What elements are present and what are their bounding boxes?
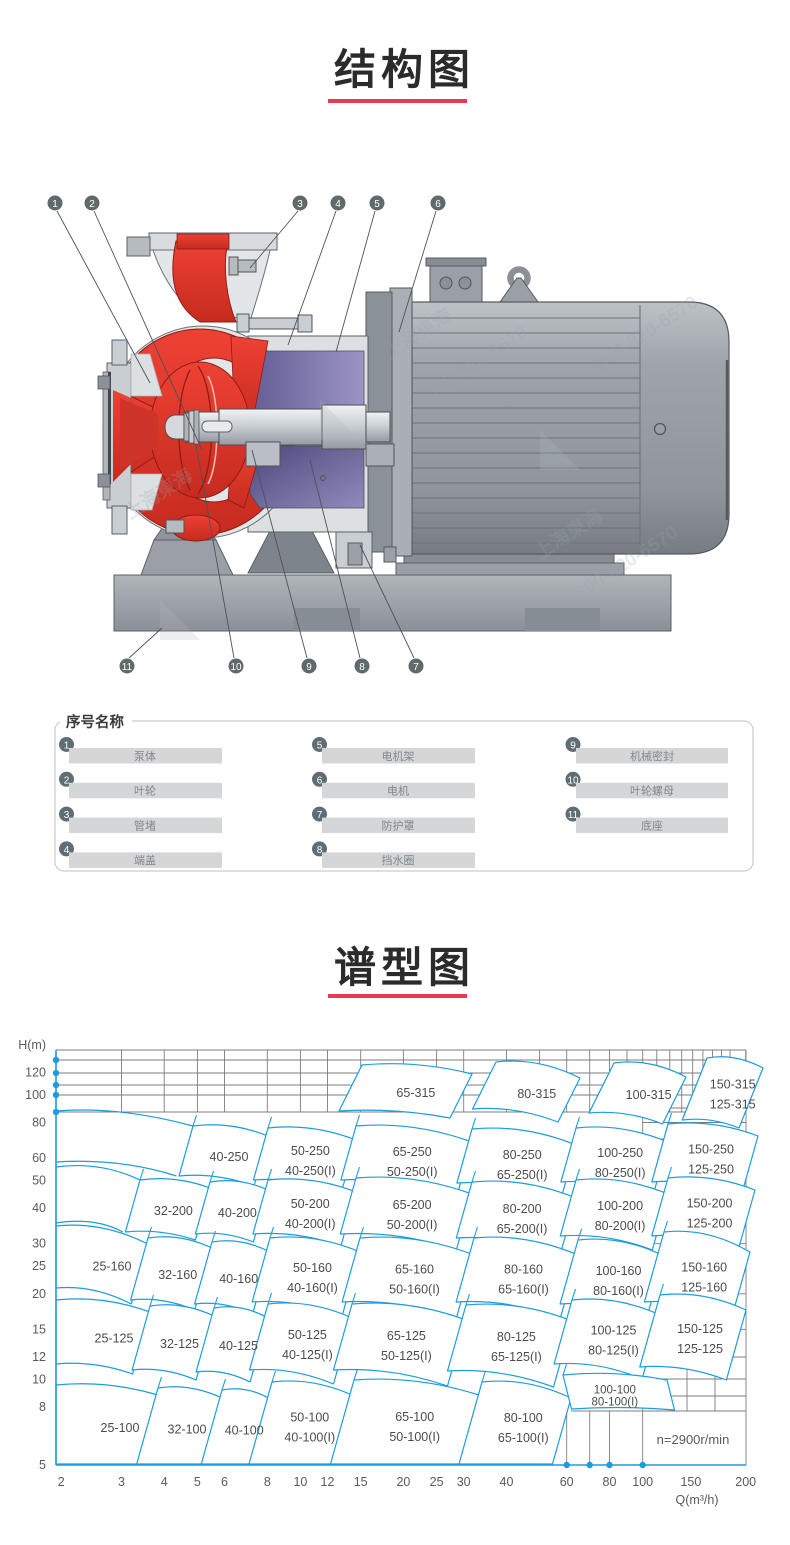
- svg-text:50-200: 50-200: [291, 1197, 330, 1211]
- svg-text:125-160: 125-160: [681, 1281, 727, 1295]
- svg-text:30: 30: [457, 1475, 471, 1489]
- svg-text:管堵: 管堵: [134, 818, 156, 832]
- svg-text:80: 80: [32, 1116, 46, 1130]
- svg-text:100: 100: [632, 1475, 653, 1489]
- svg-text:端盖: 端盖: [134, 853, 156, 867]
- svg-text:40-250(I): 40-250(I): [285, 1164, 336, 1178]
- svg-text:125-250: 125-250: [688, 1163, 734, 1177]
- svg-text:32-125: 32-125: [160, 1337, 199, 1351]
- svg-text:150-200: 150-200: [687, 1197, 733, 1211]
- svg-text:20: 20: [32, 1287, 46, 1301]
- svg-text:7: 7: [317, 810, 323, 821]
- svg-text:50-125: 50-125: [288, 1328, 327, 1342]
- svg-text:125-125: 125-125: [677, 1342, 723, 1356]
- svg-text:40-160: 40-160: [219, 1272, 258, 1286]
- svg-text:80-100: 80-100: [504, 1411, 543, 1425]
- svg-text:80-125: 80-125: [497, 1330, 536, 1344]
- svg-text:60: 60: [32, 1151, 46, 1165]
- svg-text:6: 6: [435, 199, 441, 210]
- svg-text:10: 10: [230, 662, 242, 673]
- svg-text:80-200(I): 80-200(I): [595, 1219, 646, 1233]
- svg-text:50-125(I): 50-125(I): [381, 1349, 432, 1363]
- svg-text:100: 100: [25, 1088, 46, 1102]
- svg-text:15: 15: [32, 1322, 46, 1336]
- svg-text:泵体: 泵体: [134, 749, 156, 763]
- svg-text:5: 5: [317, 741, 323, 752]
- svg-text:挡水圈: 挡水圈: [382, 853, 415, 867]
- svg-text:80-315: 80-315: [517, 1087, 556, 1101]
- svg-text:65-160: 65-160: [395, 1263, 434, 1277]
- svg-text:2: 2: [58, 1475, 65, 1489]
- svg-text:防护罩: 防护罩: [382, 818, 415, 832]
- svg-text:20: 20: [396, 1475, 410, 1489]
- svg-text:3: 3: [64, 810, 70, 821]
- svg-text:8: 8: [317, 845, 323, 856]
- svg-text:50-160(I): 50-160(I): [389, 1283, 440, 1297]
- svg-text:25: 25: [32, 1259, 46, 1273]
- svg-text:H(m): H(m): [18, 1038, 46, 1052]
- svg-text:10: 10: [32, 1372, 46, 1386]
- svg-text:8: 8: [264, 1475, 271, 1489]
- svg-text:60: 60: [560, 1475, 574, 1489]
- svg-text:3: 3: [118, 1475, 125, 1489]
- svg-text:40-160(I): 40-160(I): [287, 1281, 338, 1295]
- svg-text:12: 12: [321, 1475, 335, 1489]
- svg-text:200: 200: [735, 1475, 756, 1489]
- svg-text:40-200(I): 40-200(I): [285, 1217, 336, 1231]
- svg-text:65-125: 65-125: [387, 1329, 426, 1343]
- svg-text:80: 80: [603, 1475, 617, 1489]
- svg-text:150-315: 150-315: [710, 1078, 756, 1092]
- svg-text:50-160: 50-160: [293, 1261, 332, 1275]
- svg-text:80-250(I): 80-250(I): [595, 1166, 646, 1180]
- svg-text:9: 9: [306, 662, 312, 673]
- svg-text:40: 40: [500, 1475, 514, 1489]
- svg-text:80-100(I): 80-100(I): [591, 1397, 638, 1409]
- svg-text:4: 4: [64, 845, 70, 856]
- svg-text:32-160: 32-160: [158, 1268, 197, 1282]
- svg-text:8: 8: [39, 1400, 46, 1414]
- svg-text:120: 120: [25, 1066, 46, 1080]
- svg-text:80-160(I): 80-160(I): [593, 1284, 644, 1298]
- svg-text:40-100: 40-100: [225, 1424, 264, 1438]
- svg-text:65-200: 65-200: [393, 1198, 432, 1212]
- svg-text:4: 4: [161, 1475, 168, 1489]
- svg-text:100-125: 100-125: [591, 1324, 637, 1338]
- svg-text:30: 30: [32, 1237, 46, 1251]
- svg-text:40-200: 40-200: [218, 1206, 257, 1220]
- svg-text:50-250(I): 50-250(I): [387, 1165, 438, 1179]
- svg-text:150-250: 150-250: [688, 1143, 734, 1157]
- svg-text:25: 25: [430, 1475, 444, 1489]
- svg-text:10: 10: [293, 1475, 307, 1489]
- svg-text:65-200(I): 65-200(I): [497, 1222, 548, 1236]
- svg-text:80-250: 80-250: [503, 1148, 542, 1162]
- svg-text:5: 5: [39, 1458, 46, 1472]
- svg-text:电机: 电机: [387, 784, 409, 798]
- svg-text:50-250: 50-250: [291, 1144, 330, 1158]
- svg-text:电机架: 电机架: [382, 749, 415, 763]
- svg-text:Q(m³/h): Q(m³/h): [675, 1493, 718, 1507]
- svg-text:50-100(I): 50-100(I): [389, 1430, 440, 1444]
- svg-text:65-100(I): 65-100(I): [498, 1431, 549, 1445]
- svg-text:5: 5: [194, 1475, 201, 1489]
- svg-text:25-160: 25-160: [93, 1260, 132, 1274]
- svg-text:125-315: 125-315: [710, 1098, 756, 1112]
- svg-text:25-125: 25-125: [95, 1332, 134, 1346]
- svg-text:80-200: 80-200: [503, 1202, 542, 1216]
- svg-text:80-160: 80-160: [504, 1263, 543, 1277]
- svg-text:150-125: 150-125: [677, 1322, 723, 1336]
- svg-text:100-160: 100-160: [596, 1264, 642, 1278]
- svg-text:40-250: 40-250: [210, 1150, 249, 1164]
- svg-text:65-250: 65-250: [393, 1145, 432, 1159]
- svg-text:机械密封: 机械密封: [630, 749, 674, 763]
- svg-text:序号名称: 序号名称: [66, 713, 124, 731]
- svg-text:2: 2: [89, 199, 95, 210]
- svg-text:65-160(I): 65-160(I): [498, 1283, 549, 1297]
- svg-text:7: 7: [413, 662, 419, 673]
- svg-text:150: 150: [680, 1475, 701, 1489]
- svg-text:100-200: 100-200: [597, 1199, 643, 1213]
- svg-text:32-100: 32-100: [168, 1423, 207, 1437]
- svg-text:1: 1: [64, 741, 70, 752]
- svg-text:100-315: 100-315: [626, 1088, 672, 1102]
- svg-text:50-100: 50-100: [290, 1411, 329, 1425]
- svg-text:40: 40: [32, 1201, 46, 1215]
- svg-text:2: 2: [64, 775, 70, 786]
- svg-text:12: 12: [32, 1350, 46, 1364]
- svg-text:100-250: 100-250: [597, 1146, 643, 1160]
- svg-text:8: 8: [359, 662, 365, 673]
- svg-text:40-125(I): 40-125(I): [282, 1348, 333, 1362]
- svg-text:3: 3: [297, 199, 303, 210]
- svg-text:50: 50: [32, 1174, 46, 1188]
- svg-text:65-315: 65-315: [396, 1086, 435, 1100]
- svg-text:50-200(I): 50-200(I): [387, 1218, 438, 1232]
- svg-text:65-250(I): 65-250(I): [497, 1168, 548, 1182]
- svg-text:100-100: 100-100: [594, 1385, 636, 1397]
- svg-text:n=2900r/min: n=2900r/min: [657, 1432, 730, 1447]
- svg-text:叶轮螺母: 叶轮螺母: [630, 784, 674, 798]
- svg-text:150-160: 150-160: [681, 1261, 727, 1275]
- svg-text:125-200: 125-200: [687, 1217, 733, 1231]
- svg-text:5: 5: [374, 199, 380, 210]
- svg-text:11: 11: [122, 662, 133, 673]
- svg-text:32-200: 32-200: [154, 1204, 193, 1218]
- svg-text:1: 1: [52, 199, 58, 210]
- svg-text:4: 4: [335, 199, 341, 210]
- svg-text:叶轮: 叶轮: [134, 784, 156, 798]
- svg-text:65-125(I): 65-125(I): [491, 1350, 542, 1364]
- svg-text:底座: 底座: [641, 818, 663, 832]
- svg-text:65-100: 65-100: [395, 1410, 434, 1424]
- svg-text:9: 9: [570, 741, 576, 752]
- svg-text:15: 15: [354, 1475, 368, 1489]
- svg-text:80-125(I): 80-125(I): [588, 1344, 639, 1358]
- svg-text:6: 6: [221, 1475, 228, 1489]
- svg-text:25-100: 25-100: [101, 1421, 140, 1435]
- svg-text:40-125: 40-125: [219, 1339, 258, 1353]
- svg-text:6: 6: [317, 775, 323, 786]
- svg-text:40-100(I): 40-100(I): [284, 1431, 335, 1445]
